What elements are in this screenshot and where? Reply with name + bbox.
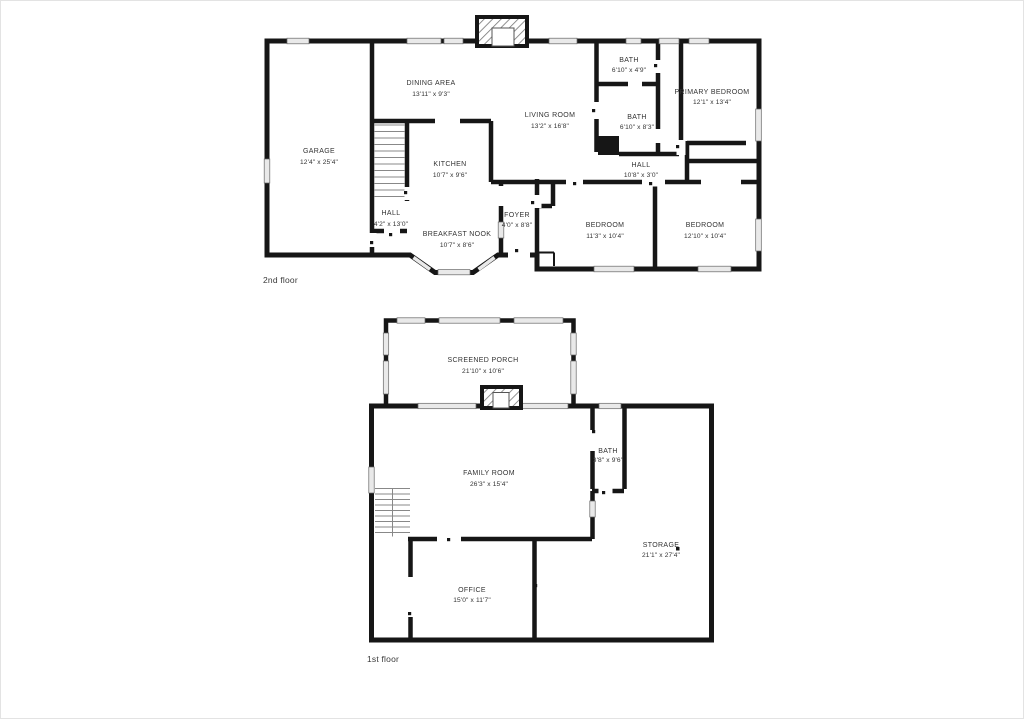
room-name: SCREENED PORCH <box>447 357 518 364</box>
room-dims: 15'0" x 11'7" <box>453 597 491 604</box>
room-name: DINING AREA <box>407 80 456 87</box>
exterior-walls <box>372 406 712 640</box>
room-dims: 4'0" x 8'8" <box>502 222 533 229</box>
room-name: BEDROOM <box>686 222 725 229</box>
room-bedroom-1: BEDROOM 11'3" x 10'4" <box>586 222 625 240</box>
room-name: KITCHEN <box>433 161 466 168</box>
room-hall-stairs: HALL 4'2" x 13'0" <box>374 210 409 228</box>
room-name: FOYER <box>504 212 530 219</box>
room-dims: 10'7" x 8'6" <box>440 242 475 249</box>
room-dims: 13'2" x 16'8" <box>531 123 570 130</box>
room-family-room: FAMILY ROOM 26'3" x 15'4" <box>463 470 515 488</box>
room-dims: 6'10" x 8'3" <box>620 124 655 131</box>
room-name: HALL <box>632 162 651 169</box>
room-office: OFFICE 15'0" x 11'7" <box>453 587 491 604</box>
room-foyer: FOYER 4'0" x 8'8" <box>502 212 533 229</box>
door-openings <box>368 60 686 260</box>
staircase <box>375 489 410 537</box>
first-floor-plan: SCREENED PORCH 21'10" x 10'6" FAMILY ROO… <box>359 301 724 673</box>
floor-label-1st: 1st floor <box>367 654 399 664</box>
room-bath-lower: BATH 6'10" x 8'3" <box>620 114 655 131</box>
room-dims: 10'8" x 3'0" <box>624 172 659 179</box>
room-primary-bedroom: PRIMARY BEDROOM 12'1" x 13'4" <box>674 89 749 106</box>
room-name: FAMILY ROOM <box>463 470 515 477</box>
room-dining-area: DINING AREA 13'11" x 9'3" <box>407 80 456 98</box>
room-bedroom-2: BEDROOM 12'10" x 10'4" <box>684 222 726 240</box>
room-dims: 11'3" x 10'4" <box>586 233 624 240</box>
room-dims: 21'1" x 27'4" <box>642 552 681 559</box>
chimney <box>477 17 527 46</box>
room-hall-bedrooms: HALL 10'8" x 3'0" <box>624 162 659 179</box>
door-markers <box>408 430 680 615</box>
room-dims: 10'7" x 9'6" <box>433 172 468 179</box>
second-floor-plan: GARAGE 12'4" x 25'4" DINING AREA 13'11" … <box>259 9 769 299</box>
room-dims: 6'10" x 4'9" <box>612 67 647 74</box>
fireplace-block <box>598 136 619 155</box>
room-living-room: LIVING ROOM 13'2" x 16'8" <box>525 112 576 130</box>
room-name: BEDROOM <box>586 222 625 229</box>
room-name: PRIMARY BEDROOM <box>674 89 749 96</box>
room-storage: STORAGE 21'1" x 27'4" <box>642 542 681 559</box>
room-name: BATH <box>598 448 618 455</box>
room-bath-upper: BATH 6'10" x 4'9" <box>612 57 647 74</box>
room-screened-porch: SCREENED PORCH 21'10" x 10'6" <box>447 357 518 375</box>
room-kitchen: KITCHEN 10'7" x 9'6" <box>433 161 468 179</box>
room-breakfast-nook: BREAKFAST NOOK 10'7" x 8'6" <box>423 231 492 249</box>
floor-label-2nd: 2nd floor <box>263 275 298 285</box>
room-name: HALL <box>382 210 401 217</box>
room-garage: GARAGE 12'4" x 25'4" <box>300 148 339 166</box>
room-name: GARAGE <box>303 148 335 155</box>
staircase <box>375 125 405 197</box>
room-name: STORAGE <box>643 542 680 549</box>
room-dims: 26'3" x 15'4" <box>470 481 509 488</box>
closet-walls <box>539 253 554 267</box>
room-name: LIVING ROOM <box>525 112 576 119</box>
room-name: BREAKFAST NOOK <box>423 231 492 238</box>
door-openings <box>437 430 613 544</box>
floorplan-canvas: GARAGE 12'4" x 25'4" DINING AREA 13'11" … <box>0 0 1024 719</box>
chimney <box>482 387 521 408</box>
room-name: BATH <box>627 114 647 121</box>
room-dims: 12'1" x 13'4" <box>693 99 732 106</box>
room-bath: BATH 3'8" x 9'6" <box>593 448 624 464</box>
room-dims: 12'4" x 25'4" <box>300 159 339 166</box>
room-dims: 3'8" x 9'6" <box>593 457 624 464</box>
room-name: BATH <box>619 57 639 64</box>
room-dims: 13'11" x 9'3" <box>412 91 450 98</box>
room-dims: 21'10" x 10'6" <box>462 368 504 375</box>
room-dims: 12'10" x 10'4" <box>684 233 726 240</box>
room-dims: 4'2" x 13'0" <box>374 221 409 228</box>
room-name: OFFICE <box>458 587 486 594</box>
